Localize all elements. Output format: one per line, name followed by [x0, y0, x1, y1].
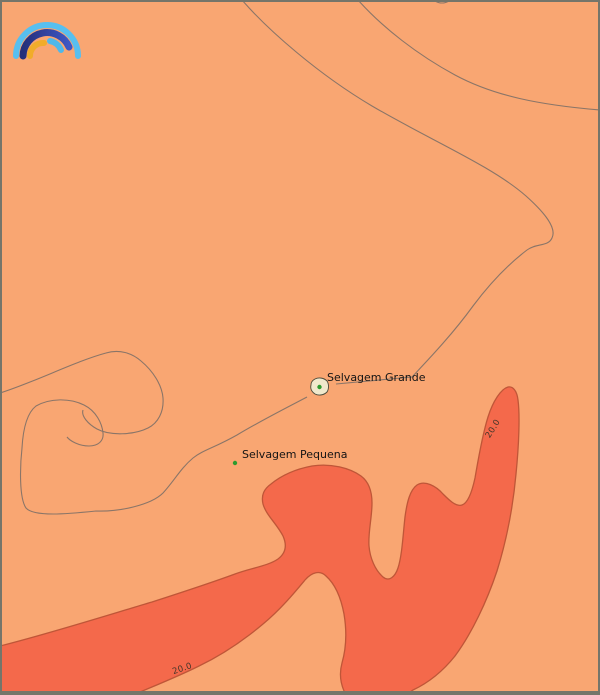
marker-selvagem-pequena: [233, 461, 237, 465]
label-selvagem-pequena: Selvagem Pequena: [242, 448, 347, 461]
logo-inner-blue-arc-icon: [50, 41, 61, 50]
rainbow-arcs-logo: [10, 12, 88, 68]
marker-selvagem-grande: [317, 385, 321, 389]
map-canvas: Selvagem Grande Selvagem Pequena 20.0 20…: [2, 2, 598, 691]
label-selvagem-grande: Selvagem Grande: [327, 371, 426, 384]
logo-inner-yellow-arc-icon: [30, 43, 44, 56]
map-viewport[interactable]: Selvagem Grande Selvagem Pequena 20.0 20…: [0, 0, 600, 695]
map-background: [2, 2, 598, 691]
